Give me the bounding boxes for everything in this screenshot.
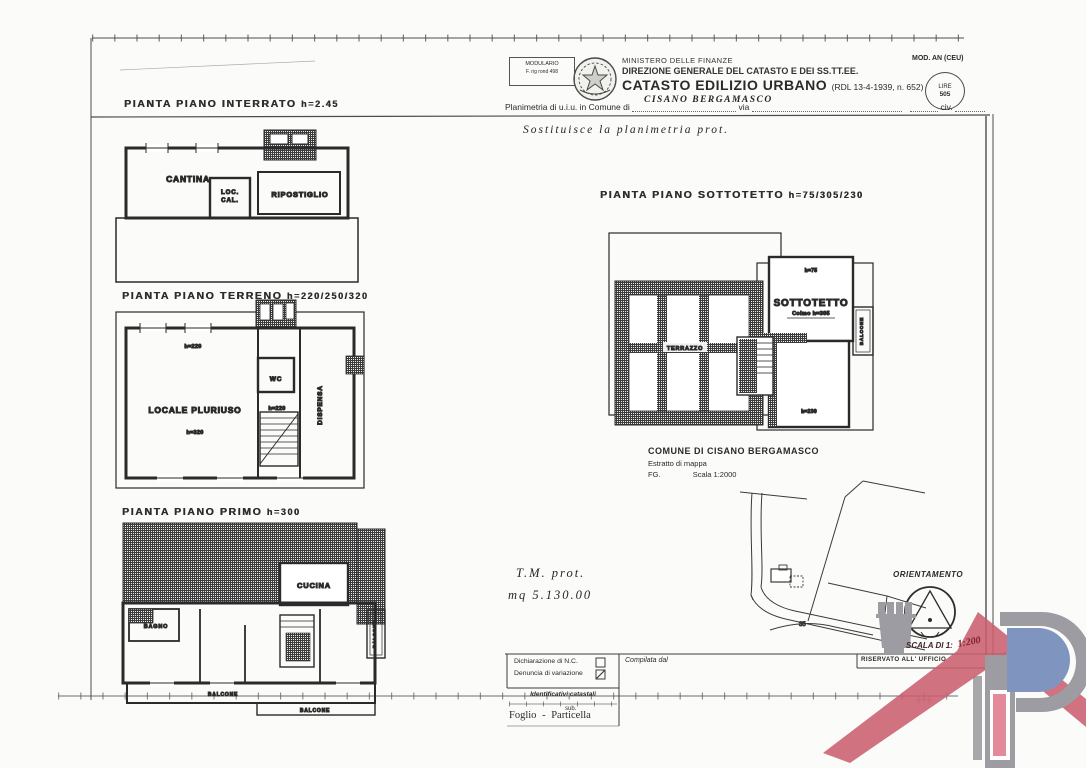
sostituisce-note: Sostituisce la planimetria prot.	[523, 124, 729, 136]
terreno-title-row: PIANTA PIANO TERRENO h=220/250/320	[122, 290, 368, 302]
form-compilata-label: Compilata dal	[625, 657, 668, 664]
planimetria-prefix: Planimetria di u.i.u. in Comune di	[505, 102, 630, 112]
scala-row: SCALA DI 1: 1:200	[906, 635, 981, 653]
modulario-box: MODULARIO F. rig rond 498	[509, 57, 575, 86]
comune-handwritten: CISANO BERGAMASCO	[644, 95, 773, 105]
map-comune-title: COMUNE DI CISANO BERGAMASCO	[648, 446, 819, 456]
logo-p-pink-bar	[993, 694, 1006, 756]
orientamento-label: ORIENTAMENTO	[893, 570, 963, 579]
map-fg-label: FG.	[648, 470, 661, 479]
sottotetto-title: PIANTA PIANO SOTTOTETTO	[600, 189, 784, 201]
primo-title-row: PIANTA PIANO PRIMO h=300	[122, 506, 301, 518]
form-foglio-label: Foglio	[509, 710, 536, 721]
lire-stamp-line1: LIRE	[938, 84, 951, 91]
civ-label: civ.	[940, 102, 952, 112]
direzione-line: DIREZIONE GENERALE DEL CATASTO E DEI SS.…	[622, 66, 858, 76]
form-identificativi-label: Identificativi catastali	[515, 691, 611, 698]
scanned-cadastral-sheet: CANTINA LOC. CAL. RIPOSTIGLIO	[0, 0, 1086, 768]
primo-title: PIANTA PIANO PRIMO	[122, 506, 262, 518]
logo-p-blue-counter	[1007, 628, 1070, 692]
lire-stamp-line2: 505	[940, 91, 951, 98]
map-scale-row: FG. Scala 1:2000	[648, 470, 736, 479]
mq-note: mq 5.130.00	[508, 588, 592, 603]
map-scale-label: Scala 1:2000	[693, 470, 737, 479]
tm-prot-note: T.M. prot.	[516, 566, 585, 581]
form-dash: -	[542, 710, 546, 721]
interrato-title-row: PIANTA PIANO INTERRATO h=2.45	[124, 98, 339, 110]
sottotetto-title-row: PIANTA PIANO SOTTOTETTO h=75/305/230	[600, 189, 864, 201]
rdl-reference: (RDL 13-4-1939, n. 652)	[832, 82, 924, 92]
map-estratto-label: Estratto di mappa	[648, 459, 707, 468]
form-dichiarazione-label: Dichiarazione di N.C.	[514, 658, 578, 665]
scala-label: SCALA DI 1:	[906, 641, 953, 650]
terreno-title: PIANTA PIANO TERRENO	[122, 290, 282, 302]
interrato-height: h=2.45	[301, 99, 339, 109]
form-foglio-particella-row: Foglio - Particella	[509, 710, 591, 721]
form-denuncia-label: Denuncia di variazione	[514, 670, 583, 677]
page-title: CATASTO EDILIZIO URBANO	[622, 77, 827, 93]
modulario-line1: MODULARIO	[510, 61, 574, 69]
primo-height: h=300	[267, 507, 301, 517]
catasto-title-row: CATASTO EDILIZIO URBANO (RDL 13-4-1939, …	[622, 77, 923, 95]
interrato-title: PIANTA PIANO INTERRATO	[124, 98, 296, 110]
agency-watermark-logo	[815, 595, 1086, 768]
terreno-height: h=220/250/320	[287, 291, 369, 301]
mod-an-label: MOD. AN (CEU)	[912, 55, 963, 62]
sottotetto-height: h=75/305/230	[789, 190, 864, 200]
form-particella-label: Particella	[551, 710, 591, 721]
modulario-line2: F. rig rond 498	[510, 69, 574, 76]
scala-handwritten-value: 1:200	[957, 635, 982, 650]
ministero-line: MINISTERO DELLE FINANZE	[622, 56, 733, 65]
